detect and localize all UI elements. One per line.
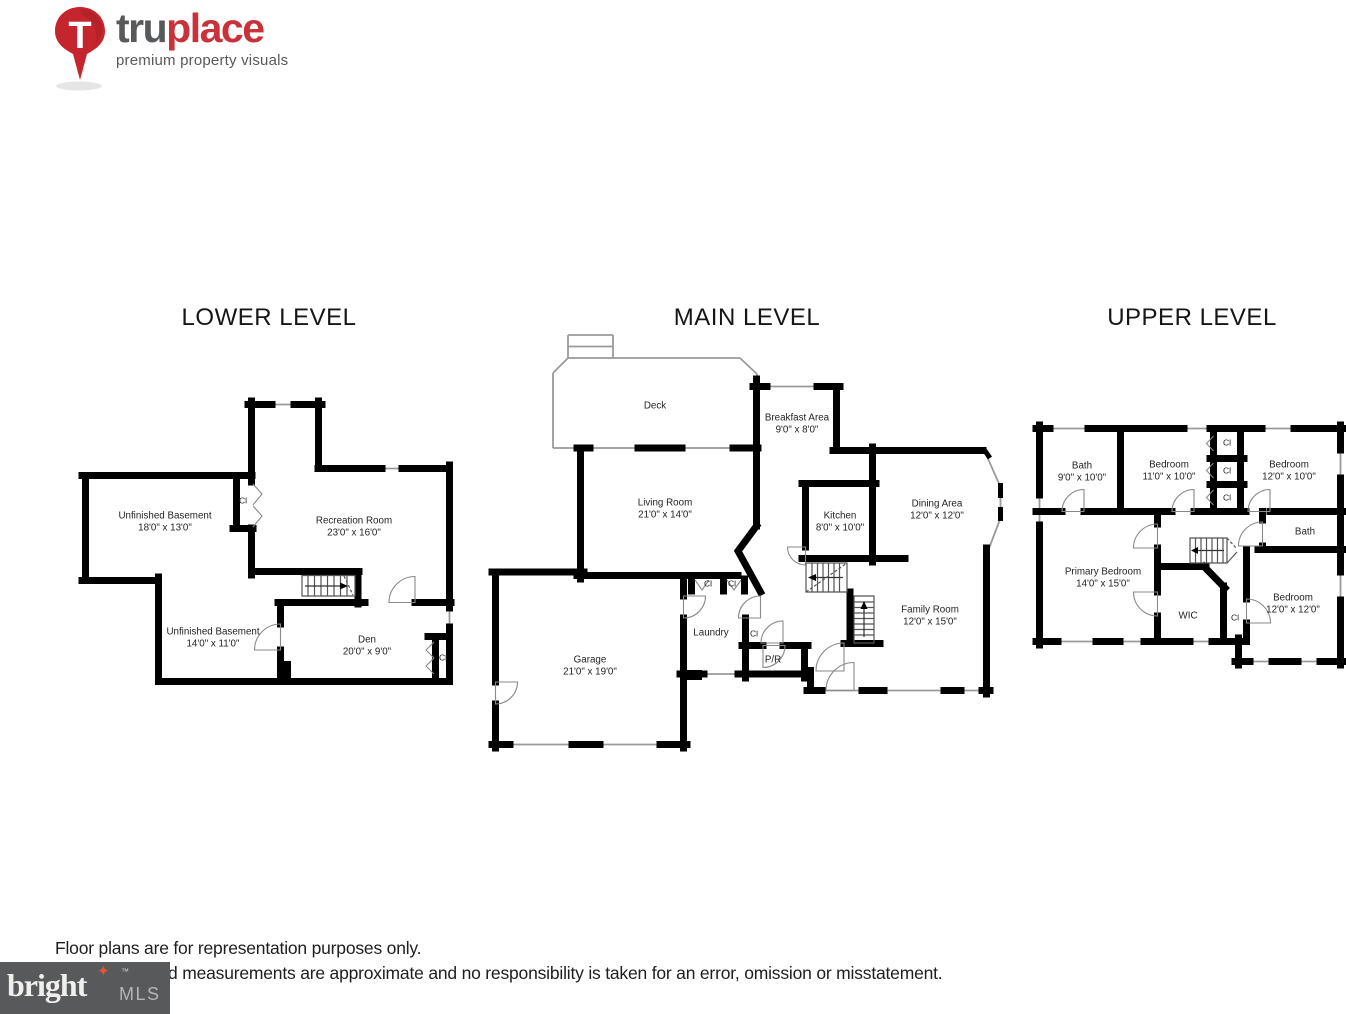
bright-mls-logo: bright ✦ ™ MLS: [0, 962, 170, 1014]
disclaimer-line-1: Floor plans are for representation purpo…: [55, 938, 421, 959]
main-level-walls: [486, 330, 1006, 760]
svg-text:T: T: [68, 15, 91, 57]
brand-name: truplace: [116, 6, 288, 50]
lower-level-walls: [76, 394, 456, 689]
room-label-laundry: Laundry: [693, 627, 728, 639]
brand-tagline: premium property visuals: [116, 52, 288, 69]
room-name: Breakfast Area: [765, 413, 829, 424]
room-label-closet-3: Cl: [1223, 492, 1231, 504]
mls-suffix-text: MLS: [119, 984, 161, 1005]
lower-level-title: LOWER LEVEL: [182, 304, 357, 332]
room-name: Garage: [574, 655, 607, 666]
room-label-family-room: Family Room 12'0" x 15'0": [901, 605, 959, 628]
room-label-bath-2: Bath: [1295, 526, 1315, 538]
room-name: Primary Bedroom: [1065, 567, 1141, 578]
room-name: Bedroom: [1273, 593, 1313, 604]
room-dims: 12'0" x 12'0": [1266, 604, 1320, 615]
main-level-title: MAIN LEVEL: [674, 304, 820, 332]
room-label-kitchen: Kitchen 8'0" x 10'0": [816, 511, 864, 534]
room-name: Recreation Room: [316, 516, 392, 527]
truplace-pin-icon: T: [52, 6, 108, 92]
room-label-closet-1: Cl: [239, 495, 247, 507]
upper-level-floorplan: Bath 9'0" x 10'0" Bedroom 11'0" x 10'0" …: [1032, 420, 1346, 670]
room-label-closet-1: Cl: [704, 578, 712, 590]
main-level-floorplan: Deck Breakfast Area 9'0" x 8'0" Living R…: [486, 330, 1006, 760]
floorplan-sheet: T truplace premium property visuals LOWE…: [0, 0, 1346, 1014]
brand-place: place: [166, 5, 263, 51]
room-label-closet-2: Cl: [439, 652, 447, 664]
room-label-wic: WIC: [1178, 610, 1197, 622]
room-label-breakfast-area: Breakfast Area 9'0" x 8'0": [765, 413, 829, 436]
upper-level-walls: [1032, 420, 1346, 670]
room-dims: 20'0" x 9'0": [343, 646, 391, 657]
room-label-closet-1: Cl: [1223, 437, 1231, 449]
star-icon: ✦: [97, 962, 110, 980]
room-dims: 11'0" x 10'0": [1142, 471, 1195, 482]
room-name: Bedroom: [1149, 460, 1189, 471]
room-label-bedroom-1: Bedroom 11'0" x 10'0": [1142, 460, 1195, 483]
room-label-closet-2: Cl: [728, 578, 736, 590]
lower-level-floorplan: Unfinished Basement 18'0" x 13'0" Recrea…: [76, 394, 456, 689]
room-dims: 9'0" x 10'0": [1058, 472, 1106, 483]
room-dims: 14'0" x 11'0": [186, 638, 239, 649]
room-label-living-room: Living Room 21'0" x 14'0": [638, 498, 692, 521]
truplace-logo: T truplace premium property visuals: [52, 4, 372, 94]
trademark-symbol: ™: [121, 967, 129, 976]
room-dims: 8'0" x 10'0": [816, 522, 864, 533]
room-dims: 18'0" x 13'0": [138, 522, 192, 533]
room-label-bath-1: Bath 9'0" x 10'0": [1058, 461, 1106, 484]
room-dims: 12'0" x 15'0": [903, 616, 957, 627]
room-name: Kitchen: [824, 511, 857, 522]
room-label-dining-area: Dining Area 12'0" x 12'0": [910, 499, 964, 522]
room-name: Dining Area: [912, 499, 963, 510]
room-name: Family Room: [901, 605, 959, 616]
room-label-deck: Deck: [644, 400, 666, 412]
upper-level-title: UPPER LEVEL: [1107, 304, 1277, 332]
room-name: Unfinished Basement: [166, 627, 259, 638]
room-label-closet-2: Cl: [1223, 465, 1231, 477]
room-dims: 23'0" x 16'0": [327, 527, 381, 538]
room-dims: 21'0" x 19'0": [563, 666, 617, 677]
mls-brand-text: bright: [7, 967, 86, 1004]
room-dims: 21'0" x 14'0": [638, 509, 692, 520]
room-label-garage: Garage 21'0" x 19'0": [563, 655, 617, 678]
room-label-unfinished-basement-1: Unfinished Basement 18'0" x 13'0": [118, 511, 211, 534]
room-label-primary-bedroom: Primary Bedroom 14'0" x 15'0": [1065, 567, 1141, 590]
room-dims: 12'0" x 10'0": [1262, 471, 1316, 482]
room-dims: 14'0" x 15'0": [1076, 578, 1130, 589]
disclaimer-line-2: d measurements are approximate and no re…: [168, 963, 942, 984]
room-label-bedroom-2: Bedroom 12'0" x 10'0": [1262, 460, 1316, 483]
room-name: Unfinished Basement: [118, 511, 211, 522]
room-label-unfinished-basement-2: Unfinished Basement 14'0" x 11'0": [166, 627, 259, 650]
room-name: Bedroom: [1269, 460, 1309, 471]
room-label-den: Den 20'0" x 9'0": [343, 635, 391, 658]
brand-tru: tru: [116, 5, 166, 51]
room-label-powder-room: P/R: [765, 654, 781, 666]
room-name: Living Room: [638, 498, 692, 509]
room-name: Den: [358, 635, 376, 646]
room-label-closet-4: Cl: [1231, 612, 1239, 624]
room-label-recreation-room: Recreation Room 23'0" x 16'0": [316, 516, 392, 539]
room-label-bedroom-3: Bedroom 12'0" x 12'0": [1266, 593, 1320, 616]
room-label-closet-3: Cl: [750, 628, 758, 640]
room-name: Bath: [1072, 461, 1092, 472]
room-dims: 12'0" x 12'0": [910, 510, 964, 521]
room-dims: 9'0" x 8'0": [776, 424, 819, 435]
